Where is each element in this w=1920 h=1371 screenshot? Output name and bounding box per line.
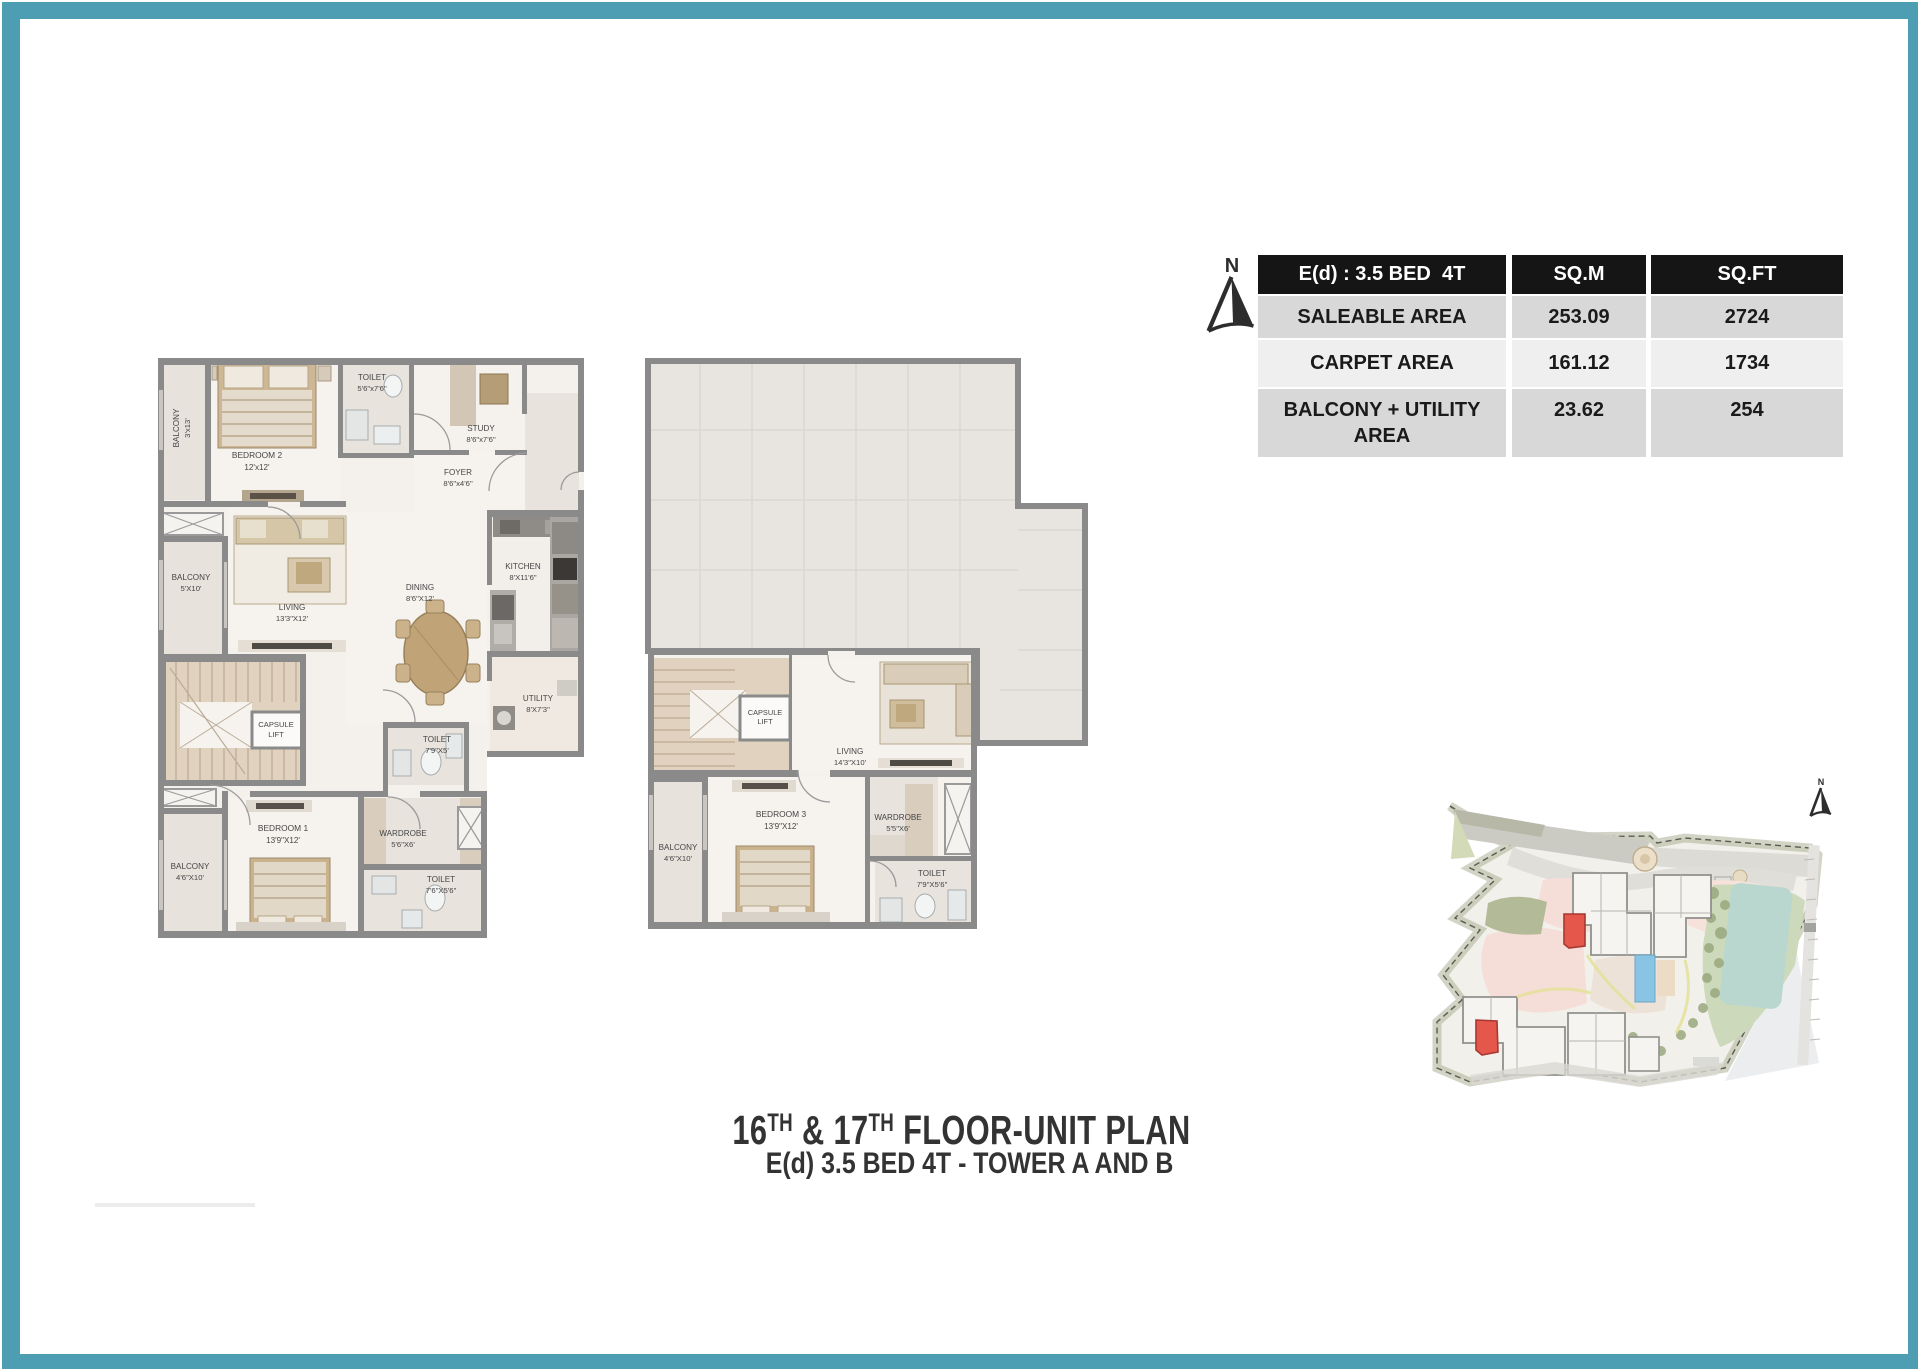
svg-text:LIFT: LIFT [757,717,773,726]
svg-text:FOYER: FOYER [444,468,472,477]
svg-text:12'x12': 12'x12' [244,463,270,472]
svg-text:BALCONY: BALCONY [172,573,211,582]
svg-text:TOILET: TOILET [423,735,451,744]
svg-text:CAPSULE: CAPSULE [748,708,783,717]
svg-text:8'6"x4'6": 8'6"x4'6" [443,479,473,488]
svg-text:LIVING: LIVING [837,747,864,756]
svg-text:TOILET: TOILET [427,875,455,884]
svg-text:5'5"X6': 5'5"X6' [886,824,910,833]
svg-text:N: N [1818,777,1825,787]
svg-text:5'6"x7'6": 5'6"x7'6" [357,384,387,393]
svg-text:13'3"X12': 13'3"X12' [276,614,309,623]
svg-text:7'6"X5'6": 7'6"X5'6" [426,886,457,895]
svg-text:13'9"X12': 13'9"X12' [764,822,798,831]
svg-text:TOILET: TOILET [358,373,386,382]
svg-text:4'6"X10': 4'6"X10' [664,854,692,863]
svg-text:4'6"X10': 4'6"X10' [176,873,204,882]
svg-text:5'X10': 5'X10' [181,584,202,593]
svg-text:BEDROOM 1: BEDROOM 1 [258,823,309,833]
svg-text:BEDROOM 2: BEDROOM 2 [232,450,283,460]
svg-text:TOILET: TOILET [918,869,946,878]
svg-text:N: N [1225,255,1239,277]
svg-text:LIFT: LIFT [268,730,284,739]
svg-text:13'9"X12': 13'9"X12' [266,836,300,845]
svg-text:BALCONY: BALCONY [172,408,181,447]
svg-text:KITCHEN: KITCHEN [505,562,541,571]
svg-text:7'9"X5': 7'9"X5' [425,746,449,755]
svg-text:BALCONY: BALCONY [171,862,210,871]
svg-text:LIVING: LIVING [279,603,306,612]
svg-text:WARDROBE: WARDROBE [379,829,427,838]
svg-text:3'x13': 3'x13' [183,418,192,438]
svg-text:5'6"X6': 5'6"X6' [391,840,415,849]
svg-text:BEDROOM 3: BEDROOM 3 [756,809,807,819]
svg-text:WARDROBE: WARDROBE [874,813,922,822]
svg-text:BALCONY: BALCONY [659,843,698,852]
svg-text:8'X11'6": 8'X11'6" [509,573,537,582]
svg-text:DINING: DINING [406,583,434,592]
svg-text:8'6"X12': 8'6"X12' [406,594,434,603]
svg-text:7'9"X5'6": 7'9"X5'6" [917,880,948,889]
svg-text:UTILITY: UTILITY [523,694,554,703]
svg-text:8'6"x7'6": 8'6"x7'6" [466,435,496,444]
svg-text:14'3"X10': 14'3"X10' [834,758,867,767]
svg-text:CAPSULE: CAPSULE [258,720,293,729]
svg-text:8'X7'3": 8'X7'3" [526,705,550,714]
svg-text:STUDY: STUDY [467,424,495,433]
